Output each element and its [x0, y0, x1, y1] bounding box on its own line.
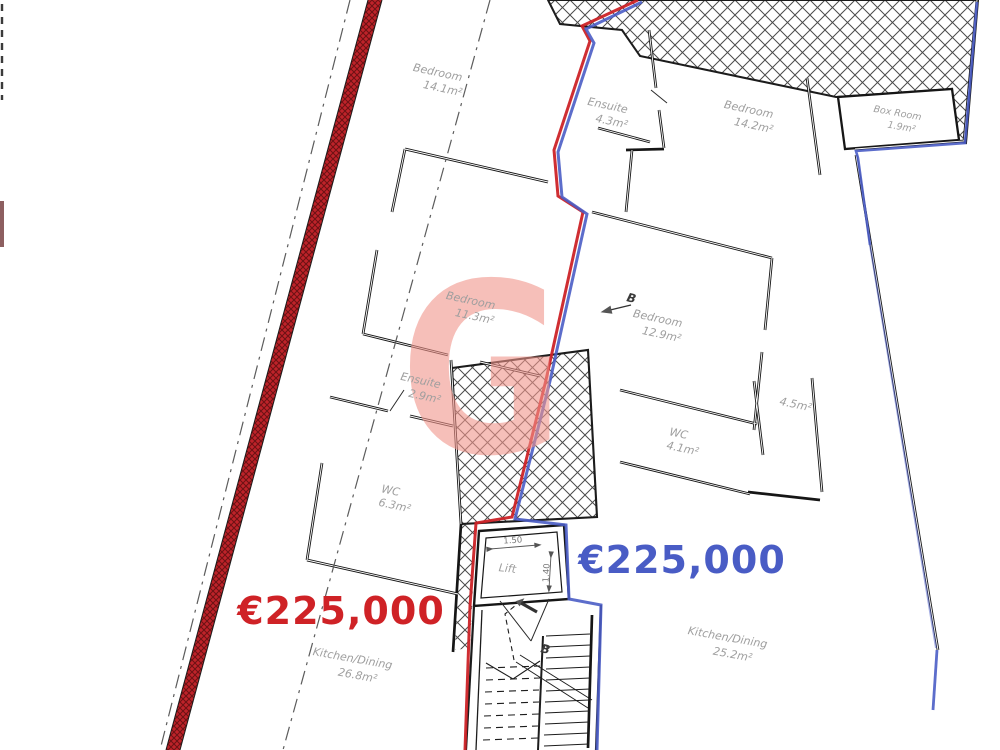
room-area-kitchen-dining-25-2: 25.2m²: [712, 645, 754, 665]
room-area-wc-4-1: 4.1m²: [665, 439, 700, 459]
stair-winder: [486, 661, 540, 679]
room-area-terrace-4-5: 4.5m²: [778, 395, 813, 415]
floor-plan-page: G Bedroom 14.1m² Ensuite 4.3m² Bedroom 1…: [0, 0, 1000, 750]
edge-mark: [0, 201, 4, 247]
lift-width-dim: 1.50: [503, 535, 523, 546]
stair-treads-right: [544, 634, 590, 746]
room-name-ensuite-4-3: Ensuite: [586, 95, 629, 116]
watermark-letter: G: [400, 233, 564, 508]
site-line-left: [160, 0, 350, 750]
stair-treads-left: [483, 666, 540, 740]
boundary-line-blue-right-lower: [870, 245, 936, 648]
section-marker-b-stairs: B: [521, 603, 552, 657]
price-right-unit: €225,000: [577, 538, 786, 582]
lift-depth-dim: 1.40: [541, 563, 552, 583]
svg-text:B: B: [625, 290, 637, 306]
svg-text:B: B: [539, 641, 551, 657]
staircase: [466, 601, 601, 750]
price-left-unit: €225,000: [236, 589, 445, 633]
section-marker-b-bedroom: B: [606, 290, 638, 311]
boundary-line-blue-bottom-tick: [933, 650, 937, 710]
room-name-lift: Lift: [498, 561, 517, 576]
floor-plan-drawing: G Bedroom 14.1m² Ensuite 4.3m² Bedroom 1…: [0, 0, 1000, 750]
party-wall-red-band: [166, 0, 382, 750]
room-area-kitchen-dining-26-8: 26.8m²: [337, 666, 379, 686]
